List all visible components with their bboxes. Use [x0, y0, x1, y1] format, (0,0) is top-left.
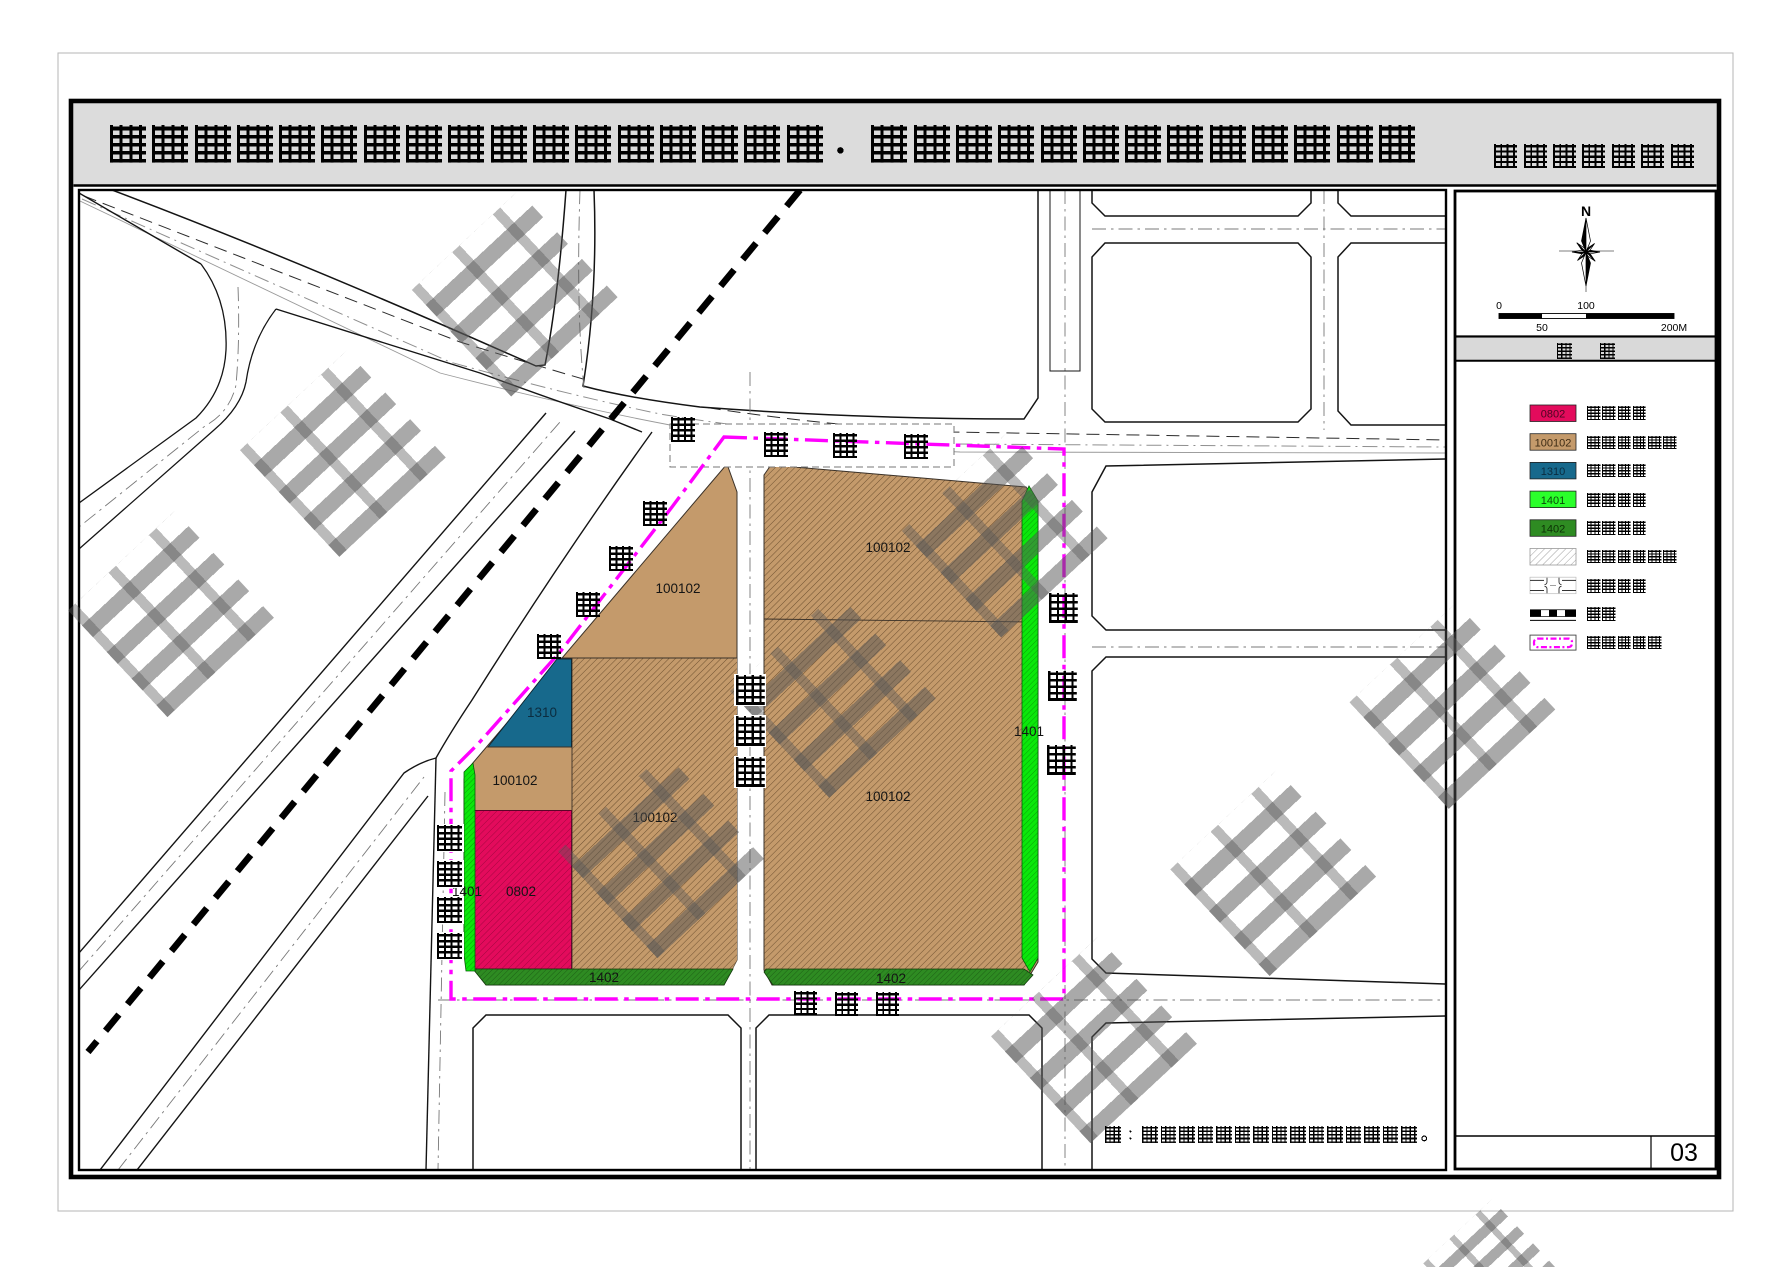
svg-text:1401: 1401 — [1541, 495, 1565, 507]
svg-text:0802: 0802 — [1541, 409, 1565, 421]
svg-text:100: 100 — [1577, 300, 1595, 312]
svg-text:200M: 200M — [1661, 322, 1687, 334]
svg-text:1402: 1402 — [589, 970, 619, 985]
svg-text:N: N — [1581, 203, 1591, 219]
svg-text:0: 0 — [1496, 300, 1502, 312]
svg-text:1310: 1310 — [1541, 466, 1565, 478]
svg-text:0802: 0802 — [506, 884, 536, 899]
svg-text:100102: 100102 — [492, 773, 537, 788]
svg-text:1310: 1310 — [527, 705, 557, 720]
svg-text:1402: 1402 — [876, 971, 906, 986]
svg-text:1401: 1401 — [1014, 724, 1044, 739]
svg-text:100102: 100102 — [655, 581, 700, 596]
svg-text:1402: 1402 — [1541, 524, 1565, 536]
svg-text:03: 03 — [1670, 1139, 1698, 1167]
svg-text:100102: 100102 — [865, 789, 910, 804]
svg-text:50: 50 — [1536, 322, 1548, 334]
svg-text:100102: 100102 — [1535, 437, 1572, 449]
